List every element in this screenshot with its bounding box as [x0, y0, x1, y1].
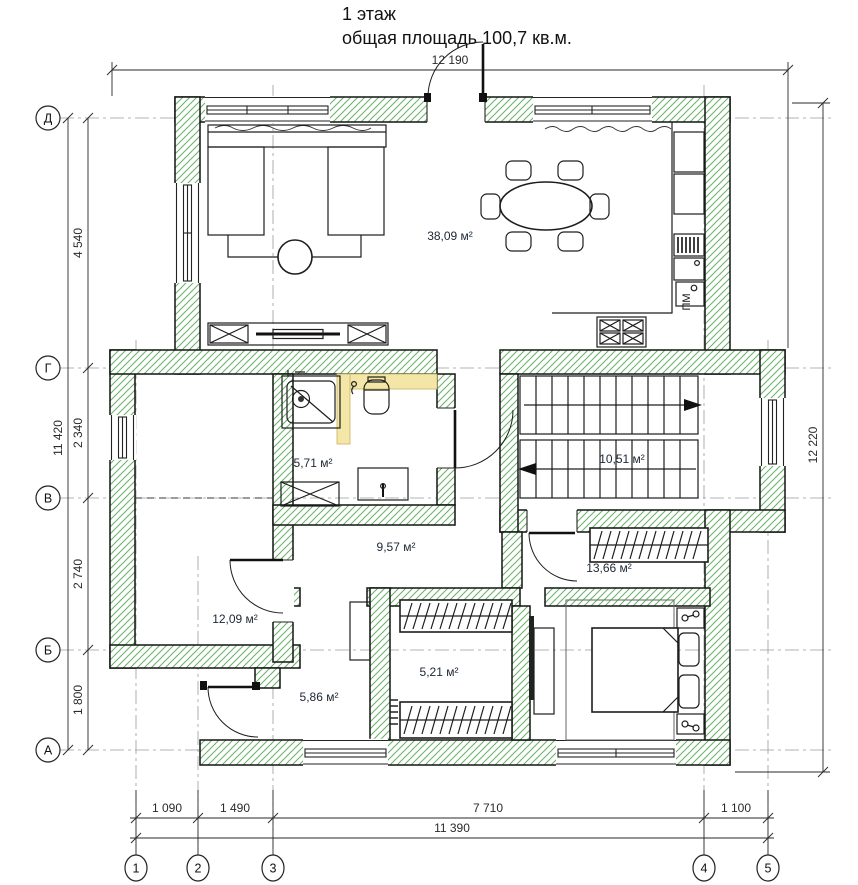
- dim-left-gv: 2 340: [71, 418, 85, 448]
- dim-bottom-4: 1 100: [721, 801, 751, 815]
- axis-bubble-g: Г: [36, 356, 60, 380]
- floor-plan-page: 12 190 12 220 11 420 4 540 2 340 2 740 1…: [0, 0, 858, 885]
- room-area-wardrobe: 13,66 м²: [586, 561, 632, 575]
- chair: [481, 194, 500, 219]
- svg-text:1: 1: [133, 862, 140, 876]
- wall-g-right: [500, 350, 785, 374]
- dim-right: 12 220: [806, 426, 820, 463]
- pillow: [679, 633, 699, 666]
- wall-int-bath-bottom: [273, 505, 455, 525]
- door-leaf-closet: [529, 616, 534, 700]
- dim-left-ba: 1 800: [71, 685, 85, 715]
- wall-int-stairwell: [500, 374, 518, 532]
- room-area-living: 38,09 м²: [427, 229, 473, 243]
- wall-int-closet-left: [370, 588, 390, 740]
- svg-text:3: 3: [270, 862, 277, 876]
- room-area-hall: 9,57 м²: [377, 540, 416, 554]
- door-entrance-side: [200, 681, 260, 737]
- dishwasher-label: ПМ: [681, 293, 693, 310]
- room-area-left: 12,09 м²: [212, 612, 258, 626]
- axis-bubble-a: А: [36, 738, 60, 762]
- wall-left-lower: [110, 350, 135, 668]
- dim-bottom-1: 1 090: [152, 801, 182, 815]
- window-kitchen-top: [533, 96, 652, 123]
- dim-bottom-3: 7 710: [473, 801, 503, 815]
- wall-int-closet-right: [512, 606, 530, 740]
- page-title: 1 этаж: [342, 4, 396, 24]
- stairs-arrow-up: [684, 399, 702, 411]
- wall-b-left: [110, 645, 300, 668]
- wall-right-upper: [705, 97, 730, 374]
- dining-set: [481, 127, 671, 252]
- window-stairs-right: [759, 398, 786, 466]
- oven: [674, 234, 704, 256]
- svg-text:4: 4: [701, 862, 708, 876]
- closet-rail-top: [400, 600, 512, 632]
- floor-plan-canvas: 12 190 12 220 11 420 4 540 2 340 2 740 1…: [0, 0, 858, 885]
- nightstand-top: [677, 608, 704, 628]
- axis-bubble-5: 5: [757, 855, 779, 881]
- dim-bottom-total: 11 390: [434, 821, 470, 835]
- svg-text:Б: Б: [44, 644, 52, 658]
- hinge-ticks: [390, 700, 398, 724]
- kitchen-counter: ПМ: [552, 122, 704, 347]
- svg-text:В: В: [44, 492, 52, 506]
- axis-bubble-3: 3: [262, 855, 284, 881]
- dining-table: [500, 182, 592, 230]
- chair: [558, 232, 583, 251]
- axis-bubble-4: 4: [693, 855, 715, 881]
- svg-text:А: А: [44, 744, 53, 758]
- stove: [597, 317, 646, 347]
- dim-top: 12 190: [432, 53, 469, 67]
- dim-left-total: 11 420: [51, 420, 65, 456]
- svg-text:2: 2: [195, 862, 202, 876]
- curtain-kitchen: [545, 127, 671, 132]
- stairs-arrow-down: [518, 463, 536, 475]
- door-stair-hall: [527, 509, 577, 581]
- axis-bubble-2: 2: [187, 855, 209, 881]
- sofa: [208, 125, 386, 257]
- closet-rail-bottom: [400, 702, 512, 738]
- pillow: [679, 675, 699, 708]
- svg-text:5: 5: [765, 862, 772, 876]
- chair: [590, 194, 609, 219]
- wall-g-left: [110, 350, 437, 374]
- bedroom-furniture: [534, 600, 704, 740]
- curtain-living: [215, 126, 371, 131]
- wall-int-bedroom-top: [545, 588, 710, 606]
- svg-text:Д: Д: [44, 112, 53, 126]
- room-area-bathroom: 5,71 м²: [294, 456, 333, 470]
- dim-bottom-2: 1 490: [220, 801, 250, 815]
- chair: [558, 161, 583, 180]
- wall-int-stub-wardrobe: [502, 532, 522, 588]
- axis-bubble-v: В: [36, 486, 60, 510]
- window-living-top: [205, 96, 330, 123]
- nightstand-bottom: [677, 714, 704, 734]
- window-bedroom-bottom: [556, 739, 676, 766]
- bed: [592, 628, 678, 712]
- dim-left-dg: 4 540: [71, 228, 85, 258]
- coffee-table: [278, 240, 312, 274]
- window-living-left: [174, 183, 201, 283]
- staircase: [518, 376, 702, 498]
- bedroom-cabinet: [534, 628, 554, 714]
- window-room-left: [109, 415, 136, 460]
- dim-left-vb: 2 740: [71, 559, 85, 589]
- room-area-stairs: 10,51 м²: [599, 452, 645, 466]
- axis-bubble-d: Д: [36, 106, 60, 130]
- svg-text:Г: Г: [45, 362, 52, 376]
- hall-cabinet: [350, 602, 370, 660]
- axis-bubble-b: Б: [36, 638, 60, 662]
- chair: [506, 161, 531, 180]
- chair: [506, 232, 531, 251]
- window-hall-bottom: [303, 739, 388, 766]
- wardrobe-rail: [590, 528, 708, 562]
- tv-stand: [208, 323, 388, 345]
- room-area-entry: 5,86 м²: [300, 690, 339, 704]
- room-area-closet: 5,21 м²: [420, 665, 459, 679]
- page-subtitle: общая площадь 100,7 кв.м.: [342, 28, 572, 48]
- wash-basin: [358, 468, 408, 500]
- axis-bubble-1: 1: [125, 855, 147, 881]
